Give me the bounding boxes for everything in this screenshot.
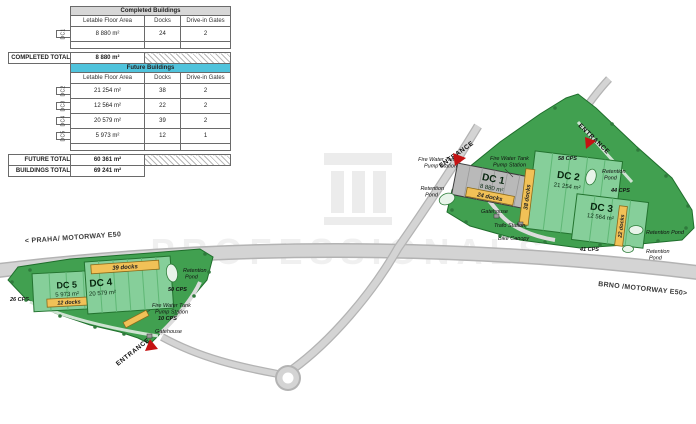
spacer-row [9, 42, 231, 49]
table-row-dc2: DC2 21 254 m² 38 2 [9, 84, 231, 99]
future-buildings-header: Future Buildings [71, 64, 231, 73]
svg-text:< PRAHA/ MOTORWAY E50: < PRAHA/ MOTORWAY E50 [25, 231, 122, 245]
completed-total-label: COMPLETED TOTAL [9, 53, 71, 64]
future-total-label: FUTURE TOTAL [9, 155, 71, 166]
motorway-label-praha: < PRAHA/ MOTORWAY E50 [25, 231, 122, 245]
col-letable-area: Letable Floor Area [71, 16, 145, 27]
trafo-station-label: Trafo Station [494, 223, 525, 229]
retention-pond-left-label2: Pond [185, 275, 199, 281]
table-row-dc3: DC3 12 564 m² 22 2 [9, 99, 231, 114]
buildings-spec-table: Completed Buildings Letable Floor Area D… [8, 6, 231, 177]
retention-north-label1: Retention [602, 169, 626, 175]
cps-44-label: 44 CPS [610, 188, 630, 194]
cps-10-label: 10 CPS [158, 316, 177, 322]
retention-east2-label2: Pond [649, 256, 663, 262]
retention-west-label1: Retention [420, 186, 444, 192]
gatehouse-right-label: Gatehouse [481, 209, 508, 215]
retention-pond-left-label1: Retention [183, 268, 207, 274]
bike-canopy-label: Bike Canopy [498, 236, 530, 242]
completed-header-row: Completed Buildings [9, 7, 231, 16]
col-drivein-gates: Drive-in Gates [181, 16, 231, 27]
gatehouse-left [147, 334, 152, 338]
col-docks: Docks [145, 16, 181, 27]
future-total-row: FUTURE TOTAL 60 361 m² [9, 155, 231, 166]
cps-41-label: 41 CPS [579, 247, 599, 253]
dc4-name: DC 4 [89, 277, 113, 290]
left-firewater-label2: Pump Station [155, 310, 188, 316]
retention-pond-east1 [629, 226, 643, 235]
table-row-dc4: DC4 20 579 m² 39 2 [9, 114, 231, 129]
buildings-total-row: BUILDINGS TOTAL 69 241 m² [9, 166, 231, 177]
retention-north-label2: Pond [604, 176, 618, 182]
table-row-dc1: DC1 8 880 m² 24 2 [9, 27, 231, 42]
retention-west-label2: Pond [425, 193, 439, 199]
row-label-dc2: DC2 [61, 86, 67, 97]
motorway-label-brno: BRNO /MOTORWAY E50> [598, 281, 688, 297]
spacer-row [9, 144, 231, 151]
watermark-logo [324, 153, 392, 225]
left-firewater-label1: Fire Water Tank [152, 303, 191, 309]
entrance-left-label: ENTRANCE [115, 337, 152, 368]
cps-58-label: 58 CPS [558, 156, 577, 162]
dc5-name: DC 5 [56, 279, 77, 290]
completed-columns-row: Letable Floor Area Docks Drive-in Gates [9, 16, 231, 27]
row-label-dc4: DC4 [61, 116, 67, 127]
svg-text:ENTRANCE: ENTRANCE [115, 337, 152, 368]
north-firewater-label2: Pump Station [493, 163, 526, 169]
site-plan-page: PROFESSIONALS < PRAHA/ MOTORWAY E50 BRNO… [0, 0, 696, 424]
future-header-row: Future Buildings [9, 64, 231, 73]
row-label-dc5: DC5 [61, 131, 67, 142]
row-label-dc3: DC3 [61, 101, 67, 112]
completed-buildings-header: Completed Buildings [71, 7, 231, 16]
retention-east1-label: Retention Pond [646, 230, 685, 236]
gatehouse-left-label: Gatehouse [155, 329, 182, 335]
svg-text:BRNO /MOTORWAY E50>: BRNO /MOTORWAY E50> [598, 281, 688, 297]
roundabout [275, 365, 301, 391]
north-firewater-label1: Fire Water Tank [490, 156, 529, 162]
future-columns-row: Letable Floor Area Docks Drive-in Gates [9, 73, 231, 84]
hatched-cell [145, 155, 231, 166]
retention-pond-east2 [623, 246, 634, 253]
cps-50-label: 50 CPS [168, 287, 187, 293]
completed-total-row: COMPLETED TOTAL 8 880 m² [9, 53, 231, 64]
hatched-cell [145, 53, 231, 64]
row-label-dc1: DC1 [61, 29, 67, 40]
svg-text:12 docks: 12 docks [57, 299, 81, 306]
building-dc3: DC 3 12 564 m² [571, 194, 648, 248]
buildings-total-label: BUILDINGS TOTAL [9, 166, 71, 177]
table-row-dc5: DC5 5 973 m² 12 1 [9, 129, 231, 144]
retention-east2-label1: Retention [646, 249, 670, 255]
